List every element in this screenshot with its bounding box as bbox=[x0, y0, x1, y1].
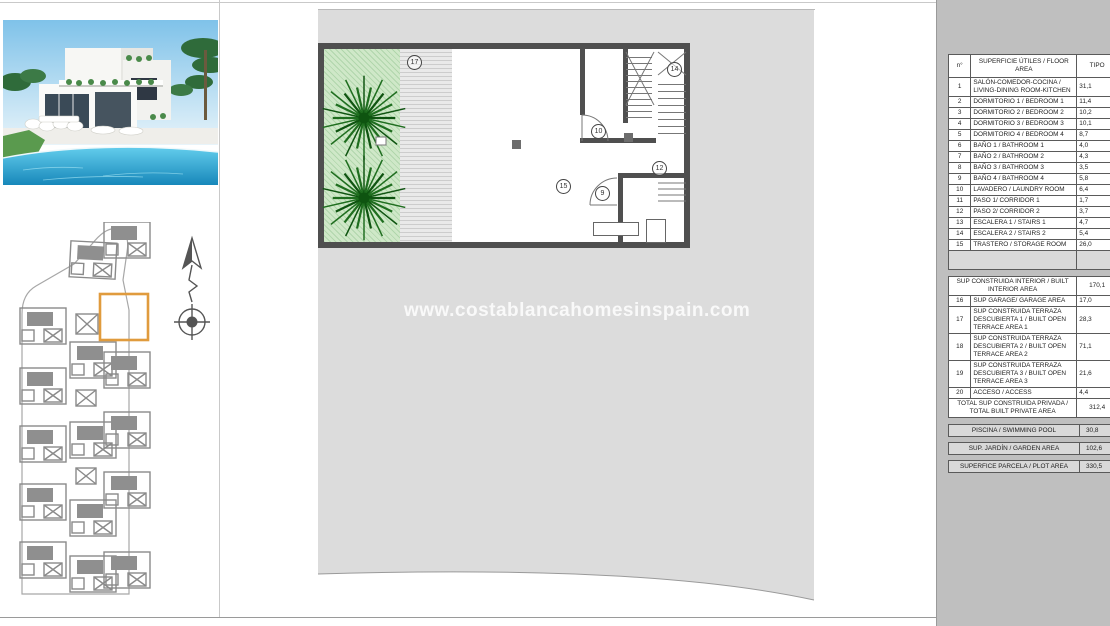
area-table-main: n° SUPERFICIE ÚTILES / FLOOR AREA TIPO 1… bbox=[948, 54, 1110, 270]
room-label-corridor2: 12 bbox=[652, 161, 667, 176]
table-cell: 2 bbox=[949, 97, 971, 108]
room-label-bath: 9 bbox=[595, 186, 610, 201]
table-cell: BAÑO 3 / BATHROOM 3 bbox=[971, 163, 1077, 174]
table-cell: 10,2 bbox=[1077, 108, 1110, 119]
table-row: 16SUP GARAGE/ GARAGE AREA17,0 bbox=[949, 296, 1110, 307]
table-cell: 10,1 bbox=[1077, 119, 1110, 130]
built-section-label: SUP CONSTRUIDA INTERIOR / BUILT INTERIOR… bbox=[949, 277, 1077, 296]
table-row: 11PASO 1/ CORRIDOR 11,7 bbox=[949, 196, 1110, 207]
double-sink bbox=[593, 222, 639, 236]
table-cell: ESCALERA 2 / STAIRS 2 bbox=[971, 229, 1077, 240]
table-cell: SUP CONSTRUIDA TERRAZA DESCUBIERTA 1 / B… bbox=[971, 307, 1077, 334]
table-cell: 4,7 bbox=[1077, 218, 1110, 229]
table-cell: 6,4 bbox=[1077, 185, 1110, 196]
page-bottom-rule bbox=[0, 617, 936, 618]
table-cell: 102,6 bbox=[1080, 443, 1110, 455]
table-row: 7BAÑO 2 / BATHROOM 24,3 bbox=[949, 152, 1110, 163]
table-row: 17SUP CONSTRUIDA TERRAZA DESCUBIERTA 1 /… bbox=[949, 307, 1110, 334]
table-cell: 4,4 bbox=[1077, 388, 1110, 399]
room-label-laundry: 10 bbox=[591, 124, 606, 139]
table-cell: PISCINA / SWIMMING POOL bbox=[949, 425, 1080, 437]
area-table-built: SUP CONSTRUIDA INTERIOR / BUILT INTERIOR… bbox=[948, 276, 1110, 418]
table-row: SUP. JARDÍN / GARDEN AREA102,6 bbox=[949, 443, 1110, 455]
table-cell: 6 bbox=[949, 141, 971, 152]
table-header-row: n° SUPERFICIE ÚTILES / FLOOR AREA TIPO bbox=[949, 55, 1110, 78]
table-cell: 8 bbox=[949, 163, 971, 174]
table-cell: TRASTERO / STORAGE ROOM bbox=[971, 240, 1077, 251]
table-cell: 5,4 bbox=[1077, 229, 1110, 240]
table-cell: 11,4 bbox=[1077, 97, 1110, 108]
room-label-stairs2: 14 bbox=[667, 62, 682, 77]
table-cell: 13 bbox=[949, 218, 971, 229]
page-top-rule bbox=[0, 2, 936, 3]
table-row: 20ACCESO / ACCESS4,4 bbox=[949, 388, 1110, 399]
site-plan bbox=[12, 222, 172, 604]
table-cell: 14 bbox=[949, 229, 971, 240]
area-table: n° SUPERFICIE ÚTILES / FLOOR AREA TIPO 1… bbox=[948, 54, 1110, 478]
table-cell: 30,8 bbox=[1080, 425, 1110, 437]
table-cell: SUP CONSTRUIDA TERRAZA DESCUBIERTA 3 / B… bbox=[971, 361, 1077, 388]
table-cell: 3 bbox=[949, 108, 971, 119]
table-cell: 1,7 bbox=[1077, 196, 1110, 207]
table-cell: 7 bbox=[949, 152, 971, 163]
table-cell: 21,6 bbox=[1077, 361, 1110, 388]
table-cell: DORMITORIO 4 / BEDROOM 4 bbox=[971, 130, 1077, 141]
table-cell: DORMITORIO 3 / BEDROOM 3 bbox=[971, 119, 1077, 130]
table-cell: 11 bbox=[949, 196, 971, 207]
built-section-value: 170,1 bbox=[1077, 277, 1110, 296]
spacer-row bbox=[949, 251, 1110, 270]
table-cell: 8,7 bbox=[1077, 130, 1110, 141]
column-mark bbox=[512, 140, 521, 149]
table-cell: PASO 1/ CORRIDOR 1 bbox=[971, 196, 1077, 207]
table-row: 14ESCALERA 2 / STAIRS 25,4 bbox=[949, 229, 1110, 240]
table-cell: SUP CONSTRUIDA TERRAZA DESCUBIERTA 2 / B… bbox=[971, 334, 1077, 361]
table-row: 6BAÑO 1 / BATHROOM 14,0 bbox=[949, 141, 1110, 152]
toilet bbox=[646, 219, 666, 243]
table-cell: DORMITORIO 2 / BEDROOM 2 bbox=[971, 108, 1077, 119]
table-row: 12PASO 2/ CORRIDOR 23,7 bbox=[949, 207, 1110, 218]
footer-table: SUPERFICE PARCELA / PLOT AREA330,5 bbox=[948, 460, 1110, 473]
table-cell: 4 bbox=[949, 119, 971, 130]
table-row: 9BAÑO 4 / BATHROOM 45,8 bbox=[949, 174, 1110, 185]
table-row: 18SUP CONSTRUIDA TERRAZA DESCUBIERTA 2 /… bbox=[949, 334, 1110, 361]
table-cell: SUPERFICE PARCELA / PLOT AREA bbox=[949, 461, 1080, 473]
plan-detail-overlay bbox=[318, 43, 690, 248]
table-row: 2DORMITORIO 1 / BEDROOM 111,4 bbox=[949, 97, 1110, 108]
table-row: SUPERFICE PARCELA / PLOT AREA330,5 bbox=[949, 461, 1110, 473]
header-tipo: TIPO bbox=[1077, 55, 1110, 78]
table-row: 15TRASTERO / STORAGE ROOM26,0 bbox=[949, 240, 1110, 251]
table-cell: 31,1 bbox=[1077, 78, 1110, 97]
table-cell: 1 bbox=[949, 78, 971, 97]
room-label-terrace: 17 bbox=[407, 55, 422, 70]
table-cell: 26,0 bbox=[1077, 240, 1110, 251]
table-row: 13ESCALERA 1 / STAIRS 14,7 bbox=[949, 218, 1110, 229]
table-cell: 330,5 bbox=[1080, 461, 1110, 473]
table-cell: 12 bbox=[949, 207, 971, 218]
table-cell: 15 bbox=[949, 240, 971, 251]
table-cell: SALÓN-COMEDOR-COCINA / LIVING-DINING ROO… bbox=[971, 78, 1077, 97]
header-num: n° bbox=[949, 55, 971, 78]
built-section-row: SUP CONSTRUIDA INTERIOR / BUILT INTERIOR… bbox=[949, 277, 1110, 296]
table-cell: 20 bbox=[949, 388, 971, 399]
table-cell: DORMITORIO 1 / BEDROOM 1 bbox=[971, 97, 1077, 108]
highlighted-unit bbox=[100, 294, 148, 340]
table-row: 5DORMITORIO 4 / BEDROOM 48,7 bbox=[949, 130, 1110, 141]
table-cell: 28,3 bbox=[1077, 307, 1110, 334]
total-row: TOTAL SUP CONSTRUIDA PRIVADA / TOTAL BUI… bbox=[949, 399, 1110, 418]
table-cell: BAÑO 4 / BATHROOM 4 bbox=[971, 174, 1077, 185]
table-cell: SUP GARAGE/ GARAGE AREA bbox=[971, 296, 1077, 307]
total-label: TOTAL SUP CONSTRUIDA PRIVADA / TOTAL BUI… bbox=[949, 399, 1077, 418]
room-label-storage: 15 bbox=[556, 179, 571, 194]
table-cell: 17 bbox=[949, 307, 971, 334]
table-cell: BAÑO 2 / BATHROOM 2 bbox=[971, 152, 1077, 163]
table-row: 10LAVADERO / LAUNDRY ROOM6,4 bbox=[949, 185, 1110, 196]
table-row: 1SALÓN-COMEDOR-COCINA / LIVING-DINING RO… bbox=[949, 78, 1110, 97]
table-cell: SUP. JARDÍN / GARDEN AREA bbox=[949, 443, 1080, 455]
table-cell: 71,1 bbox=[1077, 334, 1110, 361]
table-cell: 19 bbox=[949, 361, 971, 388]
villa-photo bbox=[3, 20, 218, 185]
table-cell: 3,7 bbox=[1077, 207, 1110, 218]
table-cell: PASO 2/ CORRIDOR 2 bbox=[971, 207, 1077, 218]
table-row: 8BAÑO 3 / BATHROOM 33,5 bbox=[949, 163, 1110, 174]
table-cell: ESCALERA 1 / STAIRS 1 bbox=[971, 218, 1077, 229]
table-row: 4DORMITORIO 3 / BEDROOM 310,1 bbox=[949, 119, 1110, 130]
footer-table: SUP. JARDÍN / GARDEN AREA102,6 bbox=[948, 442, 1110, 455]
watermark: www.costablancahomesinspain.com bbox=[404, 300, 750, 322]
table-cell: BAÑO 1 / BATHROOM 1 bbox=[971, 141, 1077, 152]
table-cell: 4,3 bbox=[1077, 152, 1110, 163]
header-desc: SUPERFICIE ÚTILES / FLOOR AREA bbox=[971, 55, 1077, 78]
column-divider-line bbox=[219, 0, 220, 617]
column-mark bbox=[624, 133, 633, 142]
table-cell: 5 bbox=[949, 130, 971, 141]
table-row: 3DORMITORIO 2 / BEDROOM 210,2 bbox=[949, 108, 1110, 119]
table-cell: 18 bbox=[949, 334, 971, 361]
table-cell: 16 bbox=[949, 296, 971, 307]
north-compass bbox=[168, 232, 216, 350]
footer-table: PISCINA / SWIMMING POOL30,8 bbox=[948, 424, 1110, 437]
table-cell: 5,8 bbox=[1077, 174, 1110, 185]
table-cell: LAVADERO / LAUNDRY ROOM bbox=[971, 185, 1077, 196]
table-cell: 10 bbox=[949, 185, 971, 196]
table-cell: 4,0 bbox=[1077, 141, 1110, 152]
table-cell: 9 bbox=[949, 174, 971, 185]
brochure-page: 17 14 10 12 15 9 www.costablancahomesins… bbox=[0, 0, 1110, 626]
table-cell: 17,0 bbox=[1077, 296, 1110, 307]
table-cell: 3,5 bbox=[1077, 163, 1110, 174]
total-value: 312,4 bbox=[1077, 399, 1110, 418]
table-row: PISCINA / SWIMMING POOL30,8 bbox=[949, 425, 1110, 437]
table-cell: ACCESO / ACCESS bbox=[971, 388, 1077, 399]
table-row: 19SUP CONSTRUIDA TERRAZA DESCUBIERTA 3 /… bbox=[949, 361, 1110, 388]
